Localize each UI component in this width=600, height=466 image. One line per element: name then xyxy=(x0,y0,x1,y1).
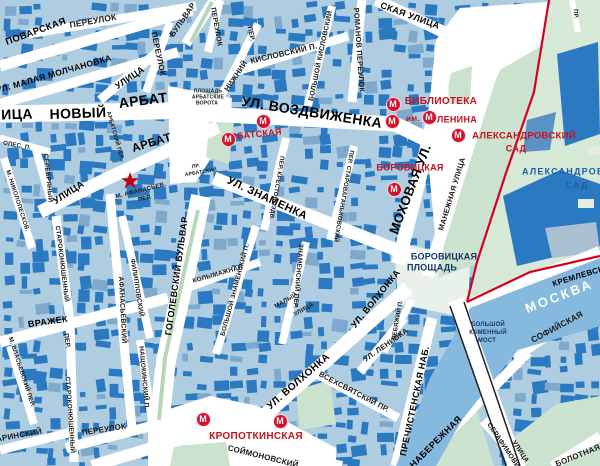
street-label: БОЛЬШОЙ ЗНАМЕНСКИЙ П. xyxy=(221,243,252,337)
street-label: АРБАТ xyxy=(118,90,168,110)
place-label: БОРОВИЦКАЯ xyxy=(411,253,477,262)
street-label: АРБАТСКИЙ ПЕР. xyxy=(104,111,123,161)
street-label: СОФИЙСКАЯ xyxy=(530,310,585,344)
metro-station-label: КРОПОТКИНСКАЯ xyxy=(209,432,303,442)
street-label: ПРЕЧИСТЕНСКАЯ НАБ. xyxy=(399,345,431,457)
metro-icon: М xyxy=(197,413,210,426)
street-label: НАБЕРЕЖНАЯ xyxy=(408,414,463,466)
metro-station-label: АЛЕКСАНДРОВСКИЙ xyxy=(472,131,576,141)
street-label: УЛ. МАЛАЯ МОЛЧАНОВКА xyxy=(0,53,113,94)
street-label: АРБАТСКИЙ xyxy=(185,168,218,179)
street-label: ФИЛИППОВСКИЙ xyxy=(128,258,144,317)
street-label: ИЦА xyxy=(1,106,33,121)
street-label: ПОВАРСКАЯ xyxy=(5,17,68,48)
street-label: СКАЯ УЛИЦА xyxy=(379,1,441,31)
metro-station-label: САД xyxy=(506,145,526,154)
metro-icon: М xyxy=(222,133,235,146)
street-label: ГАГАРИНСКИЙ xyxy=(0,428,43,446)
park-label: САД xyxy=(565,182,588,191)
place-label: КАМЕННЫЙ xyxy=(469,330,506,336)
street-label: ПЕР. xyxy=(245,26,254,42)
place-label: ПЛОЩАДЬ xyxy=(407,264,457,273)
metro-icon: М xyxy=(274,415,287,428)
street-label: ПЕРЕУЛОК xyxy=(149,31,166,76)
street-label: УЛИЦА xyxy=(114,65,146,91)
street-label: ПЕР. СТАРОВАГАНЬКОВСКИЙ xyxy=(332,150,354,243)
street-label: БОЛОТНАЯ xyxy=(555,443,600,466)
street-label: РОМАНОВ ПЕРЕУЛОК xyxy=(352,7,365,92)
street-label: АРБАТ xyxy=(131,133,173,156)
street-label: ГОГОЛЕВСКИЙ БУЛЬВАР xyxy=(164,216,190,336)
street-label: ПЕРЕУЛОК xyxy=(81,423,126,438)
metro-station-label: БИБЛИОТЕКА xyxy=(405,97,477,107)
street-label: М. ВЛАСЬЕВСКИЙ ПЕР. xyxy=(7,336,35,407)
street-label: НОВЫЙ xyxy=(49,105,106,121)
metro-icon: М xyxy=(423,111,436,124)
metro-icon: М xyxy=(257,115,270,128)
street-label: УЛ. ЛЕНИВКА xyxy=(362,327,409,363)
street-label: СЕРЕБРЯНЫЙ xyxy=(41,153,53,202)
metro-station-label: им. xyxy=(406,115,420,123)
metro-station-label: ЛЕНИНА xyxy=(437,116,477,125)
street-label: СТАРОКОНЮШЕННЫЙ xyxy=(53,225,69,302)
street-label: НАЩОКИНСКИЙ П. xyxy=(137,346,149,410)
street-label: УЛИЦА xyxy=(52,180,86,207)
street-label: СТАРОКОНЮШЕННЫЙ xyxy=(63,376,75,453)
map-labels: ПЕРЕУЛОКПОВАРСКАЯУЛ. МАЛАЯ МОЛЧАНОВКАУЛИ… xyxy=(0,0,600,466)
street-label: М. НИКОЛОПЕСКОВ. xyxy=(4,170,30,233)
street-label: ВРАЖЕК xyxy=(27,315,68,330)
street-label: УЛ. ВОЛХОНКА xyxy=(266,352,333,412)
star-marker: ★ xyxy=(120,170,141,193)
place-label: БОЛЬШОЙ xyxy=(471,322,505,328)
street-label: ПЕРЕУЛОК xyxy=(209,7,223,47)
street-label: ВСЕХСВЯТСКИЙ ПР. xyxy=(318,370,391,413)
street-label: ПЕР. xyxy=(62,333,71,349)
metro-icon: М xyxy=(387,98,400,111)
park-label: АЛЕКСАНДРОВСКИЙ xyxy=(522,168,600,177)
street-label: ПР. xyxy=(572,9,579,19)
street-label: ОПЕС. П. xyxy=(3,141,32,152)
street-label: КИСЛОВСКИЙ П. xyxy=(250,42,319,65)
street-label: ПЕР. xyxy=(138,194,153,203)
metro-icon: М xyxy=(452,129,465,142)
metro-icon: М xyxy=(386,115,399,128)
place-label: МОСТ xyxy=(478,338,496,344)
street-label: СОЙМОНОВСКИЙ xyxy=(227,444,299,466)
street-label: БОЛЬШОЙ КИСЛОВСКИЙ xyxy=(308,10,334,101)
street-label: ПЕРЕУЛОК xyxy=(69,13,117,30)
metro-icon: М xyxy=(388,183,401,196)
street-label: ВОРОТА xyxy=(196,102,218,107)
street-label: АФАНАСЬЕВСКИЙ xyxy=(117,276,128,343)
street-label: НИЖНИЙ xyxy=(223,59,249,92)
metro-station-label: БОРОВИЦКАЯ xyxy=(376,164,443,173)
street-label: БУЛЬВАР xyxy=(168,2,197,39)
moscow-street-map[interactable]: ПЕРЕУЛОКПОВАРСКАЯУЛ. МАЛАЯ МОЛЧАНОВКАУЛИ… xyxy=(0,0,600,466)
